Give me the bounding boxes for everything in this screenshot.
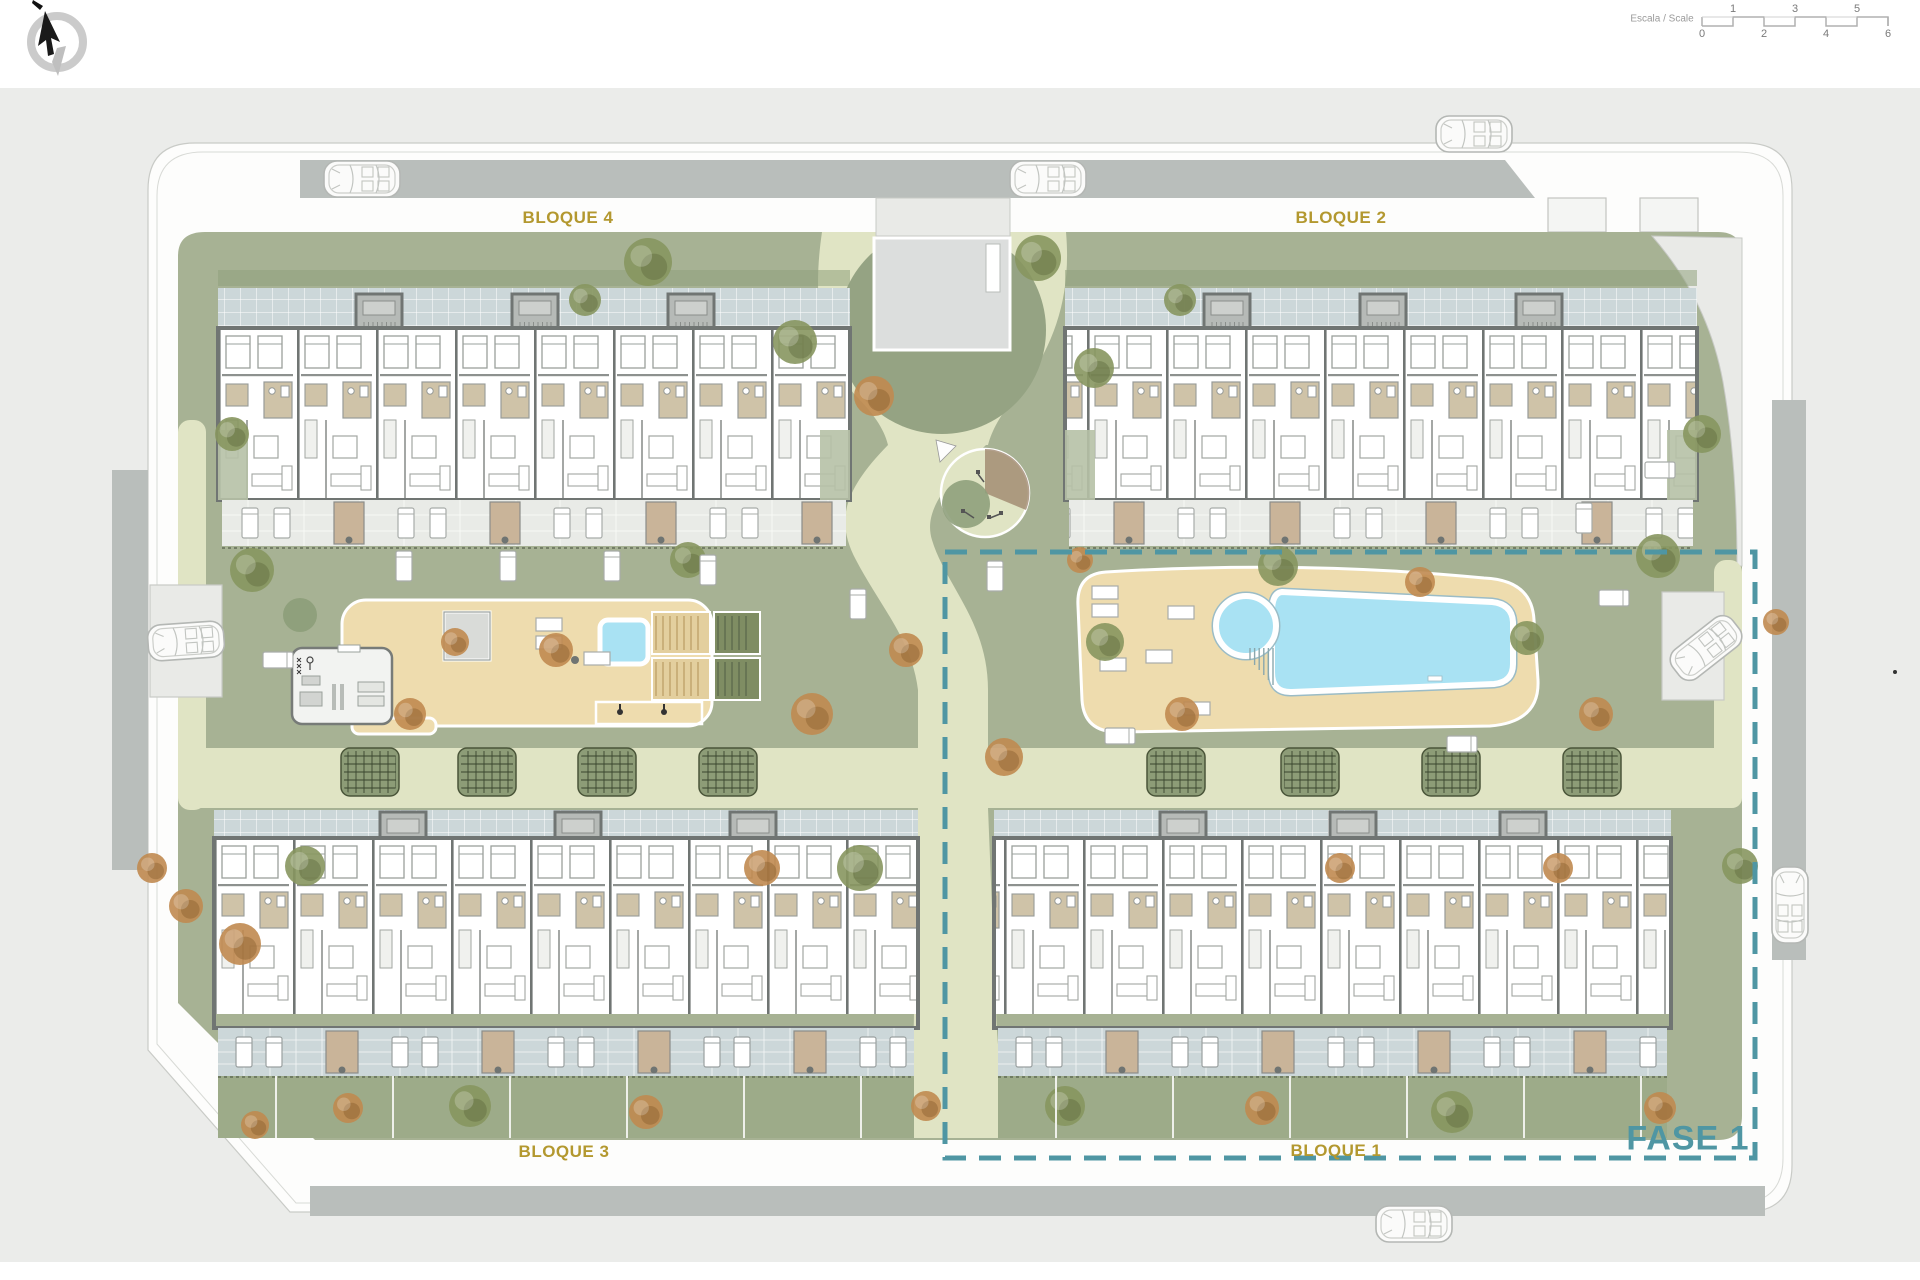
building-bloque-2	[1065, 270, 1697, 548]
scale-tick: 4	[1823, 28, 1829, 40]
building-bloque-4	[218, 270, 850, 548]
terraces	[218, 1028, 914, 1076]
parking-notch	[1548, 198, 1606, 232]
amenity-deck	[292, 600, 760, 734]
scale-tick: 5	[1854, 3, 1860, 15]
terraces	[998, 1028, 1667, 1076]
scale-tick: 1	[1730, 3, 1736, 15]
site-plan-drawing	[0, 0, 1920, 1280]
swimming-pool	[1272, 592, 1513, 692]
scale-bar-label: Escala / Scale	[1630, 14, 1693, 25]
scale-tick: 2	[1761, 28, 1767, 40]
scale-tick: 3	[1792, 3, 1798, 15]
terraces	[222, 500, 846, 546]
gym-building	[292, 645, 392, 724]
road-left	[112, 470, 148, 870]
label-bloque-3: BLOQUE 3	[519, 1142, 610, 1162]
garden-circle	[283, 598, 317, 632]
survey-dot	[1893, 670, 1897, 674]
garden-strip	[218, 1076, 914, 1138]
pool-deck	[1078, 567, 1538, 732]
north-arrow-compass-icon	[31, 0, 83, 76]
playground-circle	[941, 449, 1029, 537]
road-bottom	[310, 1186, 1765, 1216]
label-fase-1: FASE 1	[1626, 1120, 1749, 1159]
kids-pool	[1216, 596, 1276, 656]
scale-tick: 0	[1699, 28, 1705, 40]
road-top	[300, 160, 1535, 198]
label-bloque-4: BLOQUE 4	[523, 208, 614, 228]
terraces	[1069, 500, 1693, 546]
garden-strip	[998, 1076, 1667, 1138]
label-bloque-2: BLOQUE 2	[1296, 208, 1387, 228]
site-plan-page: BLOQUE 4 BLOQUE 2 BLOQUE 3 BLOQUE 1 FASE…	[0, 0, 1920, 1280]
scale-tick: 6	[1885, 28, 1891, 40]
label-bloque-1: BLOQUE 1	[1291, 1141, 1382, 1161]
parking-notch	[1640, 198, 1698, 232]
graphic-scale-bar	[1702, 17, 1888, 26]
